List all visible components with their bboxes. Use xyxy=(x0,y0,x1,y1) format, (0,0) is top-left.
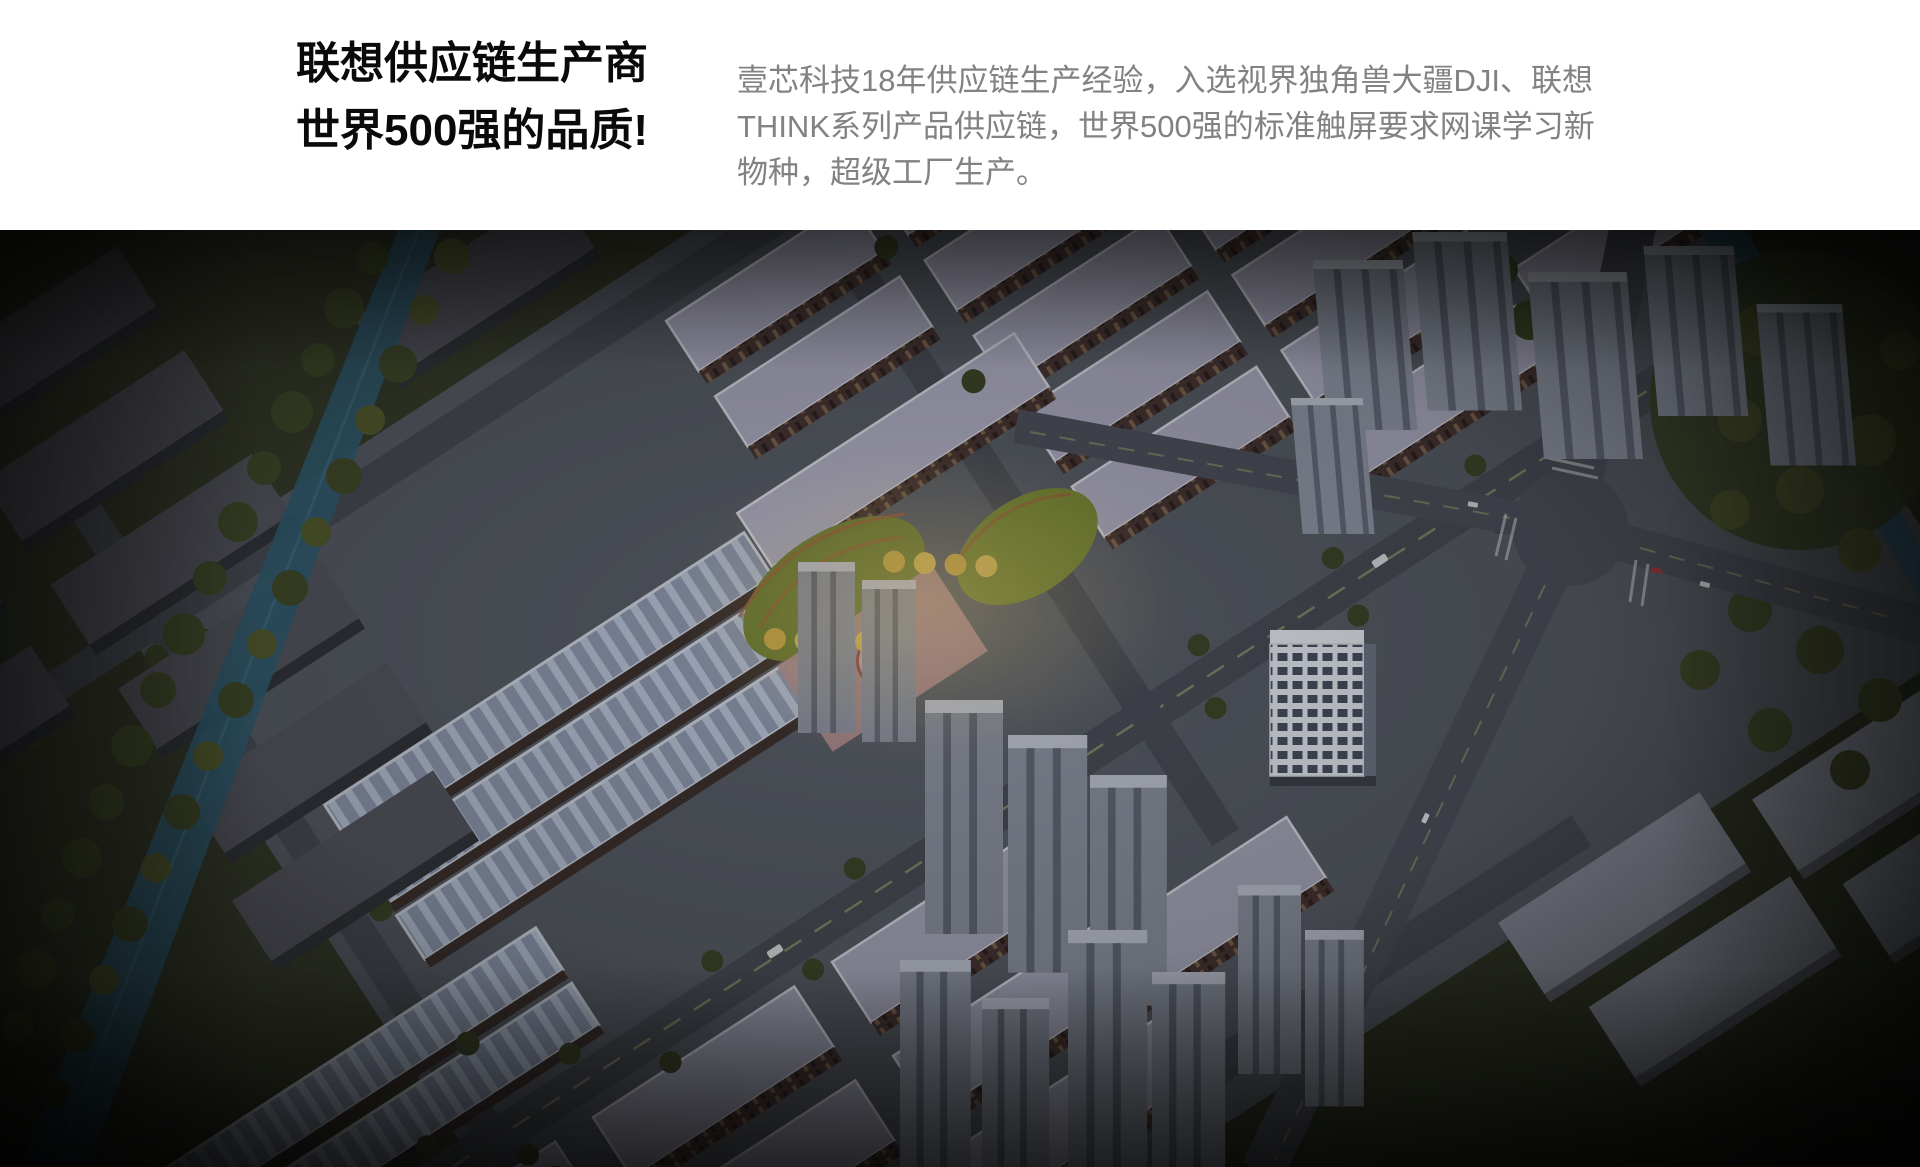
header-section: 联想供应链生产商 世界500强的品质! 壹芯科技18年供应链生产经验，入选视界独… xyxy=(0,0,1920,230)
intro-line-1: 壹芯科技18年供应链生产经验，入选视界独角兽大疆DJI、联想 xyxy=(737,58,1595,104)
intro-line-2: THINK系列产品供应链，世界500强的标准触屏要求网课学习新 xyxy=(737,104,1595,150)
vignette-top xyxy=(0,230,1920,370)
intro-paragraph: 壹芯科技18年供应链生产经验，入选视界独角兽大疆DJI、联想 THINK系列产品… xyxy=(737,58,1595,196)
vignette-right xyxy=(1660,230,1920,1167)
vignette-bottom xyxy=(0,967,1920,1167)
hero-image xyxy=(0,230,1920,1167)
intro-line-3: 物种，超级工厂生产。 xyxy=(737,150,1595,196)
vignette-left xyxy=(0,230,260,1167)
page-title-line-1: 联想供应链生产商 xyxy=(296,30,648,97)
page-title: 联想供应链生产商 世界500强的品质! xyxy=(296,30,648,164)
aerial-rendering-canvas xyxy=(0,230,1920,1167)
page-title-line-2: 世界500强的品质! xyxy=(296,97,648,164)
